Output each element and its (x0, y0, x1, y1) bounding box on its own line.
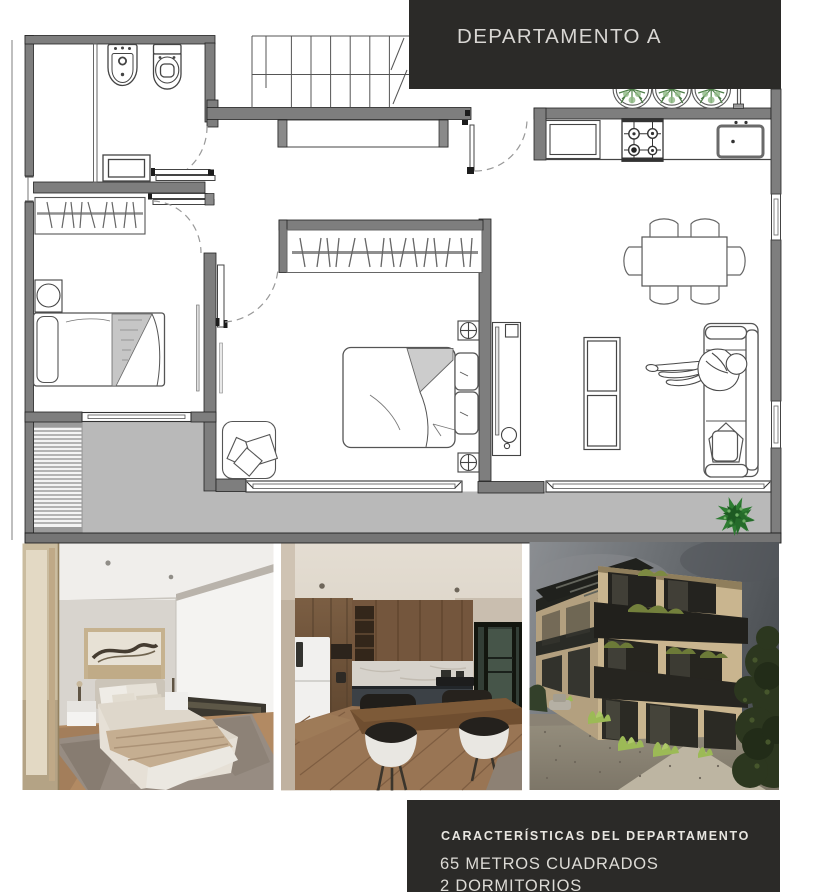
svg-text:2 DORMITORIOS: 2 DORMITORIOS (440, 877, 582, 892)
svg-text:DEPARTAMENTO A: DEPARTAMENTO A (457, 25, 662, 48)
svg-text:CARACTERÍSTICAS DEL DEPARTAMEN: CARACTERÍSTICAS DEL DEPARTAMENTO (441, 828, 750, 843)
svg-text:65 METROS CUADRADOS: 65 METROS CUADRADOS (440, 855, 659, 873)
